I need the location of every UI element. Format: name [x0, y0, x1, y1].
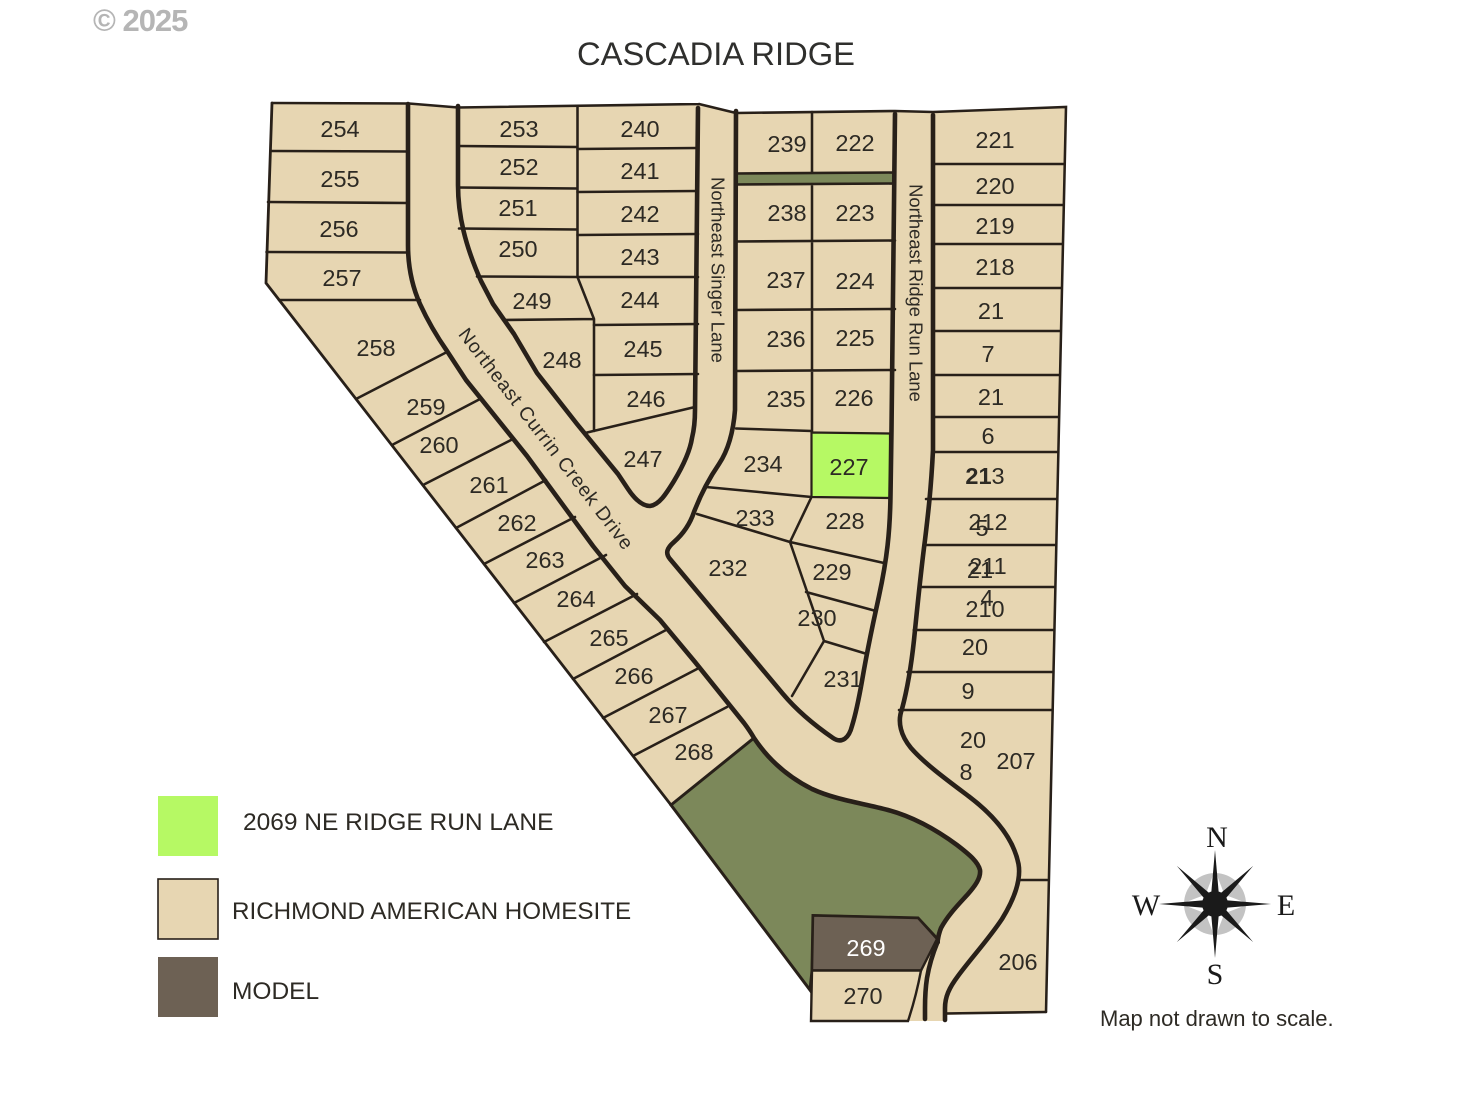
svg-text:230: 230	[797, 605, 836, 631]
svg-text:21: 21	[967, 557, 993, 583]
svg-text:266: 266	[614, 663, 653, 689]
svg-text:245: 245	[623, 336, 662, 362]
svg-text:Map not drawn to scale.: Map not drawn to scale.	[1100, 1006, 1334, 1031]
svg-text:259: 259	[406, 394, 445, 420]
svg-text:231: 231	[823, 666, 862, 692]
svg-text:226: 226	[834, 385, 873, 411]
svg-text:248: 248	[542, 347, 581, 373]
svg-text:247: 247	[623, 446, 662, 472]
svg-text:218: 218	[975, 254, 1014, 280]
svg-text:219: 219	[975, 213, 1014, 239]
svg-text:269: 269	[846, 935, 885, 961]
svg-text:262: 262	[497, 510, 536, 536]
svg-text:258: 258	[356, 335, 395, 361]
svg-text:250: 250	[498, 236, 537, 262]
svg-text:260: 260	[419, 432, 458, 458]
svg-text:220: 220	[975, 173, 1014, 199]
svg-text:Northeast Singer Lane: Northeast Singer Lane	[708, 177, 729, 363]
svg-text:267: 267	[648, 702, 687, 728]
svg-text:229: 229	[812, 559, 851, 585]
svg-text:225: 225	[835, 325, 874, 351]
svg-text:20: 20	[962, 634, 988, 660]
svg-text:234: 234	[743, 451, 782, 477]
svg-text:CASCADIA RIDGE: CASCADIA RIDGE	[577, 35, 855, 72]
svg-text:RICHMOND AMERICAN HOMESITE: RICHMOND AMERICAN HOMESITE	[232, 898, 631, 925]
svg-text:6: 6	[981, 423, 994, 449]
svg-text:223: 223	[835, 200, 874, 226]
svg-text:7: 7	[981, 341, 994, 367]
svg-text:232: 232	[708, 555, 747, 581]
svg-text:254: 254	[320, 116, 359, 142]
svg-text:213: 213	[965, 463, 1004, 489]
svg-text:228: 228	[825, 508, 864, 534]
svg-text:236: 236	[766, 326, 805, 352]
svg-text:265: 265	[589, 625, 628, 651]
svg-text:227: 227	[829, 454, 868, 480]
svg-text:S: S	[1207, 958, 1224, 991]
svg-text:246: 246	[626, 386, 665, 412]
svg-text:251: 251	[498, 195, 537, 221]
svg-text:237: 237	[766, 267, 805, 293]
svg-text:N: N	[1206, 821, 1228, 854]
svg-text:9: 9	[961, 678, 974, 704]
svg-text:239: 239	[767, 131, 806, 157]
svg-text:240: 240	[620, 116, 659, 142]
svg-text:224: 224	[835, 268, 874, 294]
svg-text:221: 221	[975, 127, 1014, 153]
svg-text:238: 238	[767, 200, 806, 226]
svg-text:241: 241	[620, 158, 659, 184]
svg-text:E: E	[1277, 889, 1295, 922]
svg-text:207: 207	[996, 748, 1035, 774]
svg-text:244: 244	[620, 287, 659, 313]
svg-text:264: 264	[556, 586, 595, 612]
svg-text:263: 263	[525, 547, 564, 573]
svg-text:253: 253	[499, 116, 538, 142]
svg-text:21: 21	[978, 298, 1004, 324]
svg-text:21: 21	[978, 384, 1004, 410]
svg-text:20: 20	[960, 727, 986, 753]
svg-text:222: 222	[835, 130, 874, 156]
svg-text:252: 252	[499, 154, 538, 180]
svg-text:257: 257	[322, 265, 361, 291]
svg-text:4: 4	[980, 585, 993, 611]
svg-text:233: 233	[735, 505, 774, 531]
svg-text:270: 270	[843, 983, 882, 1009]
svg-text:243: 243	[620, 244, 659, 270]
svg-text:MODEL: MODEL	[232, 978, 319, 1005]
svg-text:W: W	[1132, 889, 1161, 922]
svg-text:2069 NE RIDGE RUN LANE: 2069 NE RIDGE RUN LANE	[243, 809, 553, 836]
svg-text:5: 5	[975, 515, 988, 541]
svg-text:© 2025: © 2025	[93, 3, 188, 38]
svg-text:268: 268	[674, 739, 713, 765]
svg-text:249: 249	[512, 288, 551, 314]
svg-text:235: 235	[766, 386, 805, 412]
svg-text:242: 242	[620, 201, 659, 227]
svg-text:255: 255	[320, 166, 359, 192]
svg-text:206: 206	[998, 949, 1037, 975]
svg-text:8: 8	[959, 759, 972, 785]
svg-text:256: 256	[319, 216, 358, 242]
svg-text:Northeast Ridge Run Lane: Northeast Ridge Run Lane	[906, 184, 927, 402]
svg-text:261: 261	[469, 472, 508, 498]
